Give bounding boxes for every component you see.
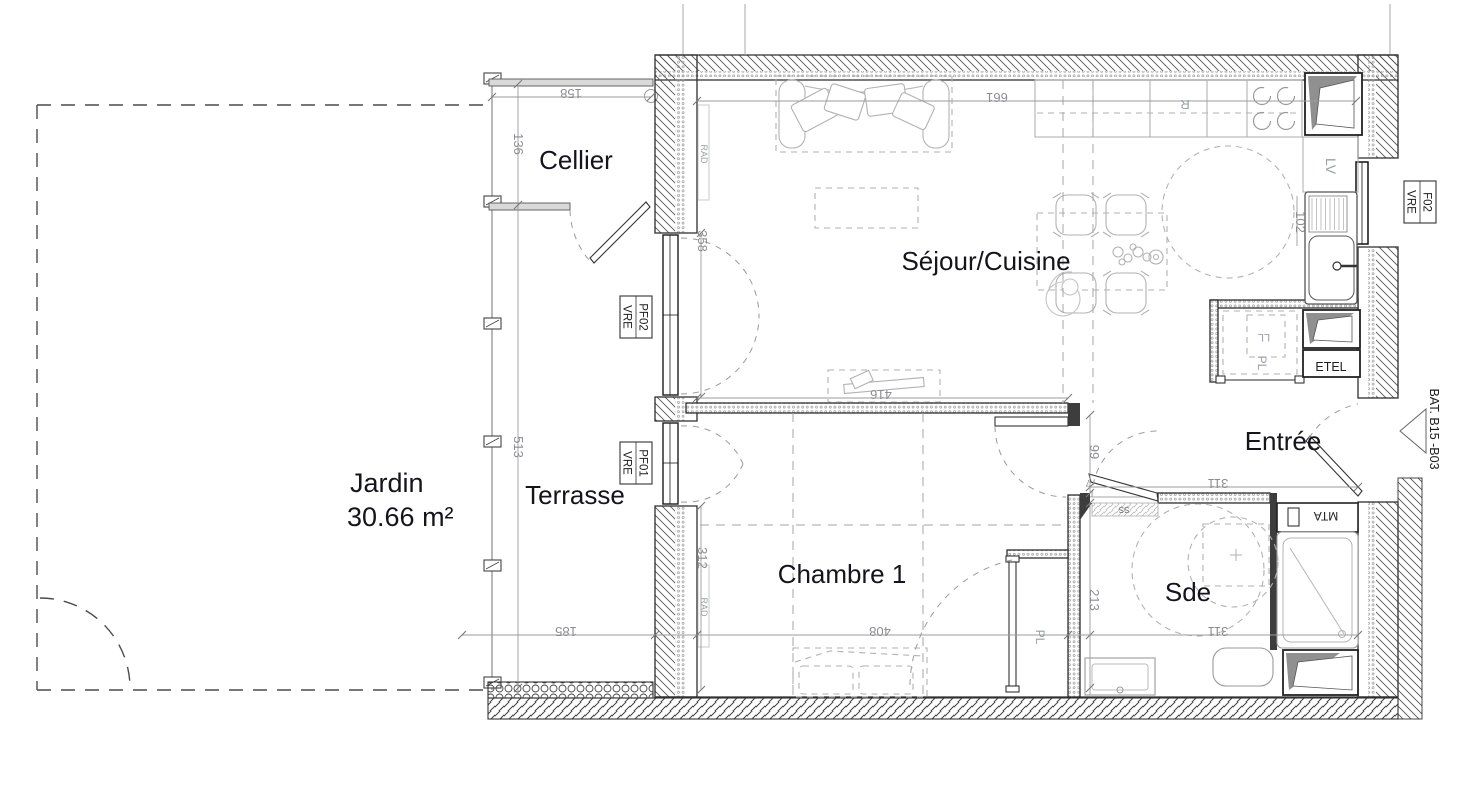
- dim-hall-height: 99: [1087, 445, 1102, 459]
- pf01-type: VRE: [621, 451, 633, 475]
- dishwasher-tag: LV: [1323, 158, 1339, 175]
- window-tag-f02: F02 VRE: [1404, 181, 1436, 223]
- dim-cellier-height: 136: [511, 133, 526, 155]
- dim-kitchen-col: 102: [1293, 211, 1308, 233]
- turning-circle: [1132, 504, 1264, 636]
- building-ref-label: BAT. B15 -B03: [1427, 388, 1441, 469]
- garden-fence: [484, 73, 501, 690]
- window-tag-pf01: PF01 VRE: [620, 442, 652, 484]
- floor-plan-drawing: 158 136 513 185 661 358 416 312 408 99 2…: [0, 0, 1470, 800]
- etel-tag: ETEL: [1315, 360, 1346, 374]
- pf01-code: PF01: [637, 449, 649, 477]
- entry-closet: [1216, 311, 1304, 383]
- window-tag-pf02: PF02 VRE: [620, 296, 652, 338]
- sejour-label: Séjour/Cuisine: [901, 246, 1070, 276]
- room-labels: Jardin 30.66 m² Terrasse Cellier Séjour/…: [347, 145, 1321, 607]
- f02-code: F02: [1421, 192, 1433, 212]
- dim-inner-wall: 416: [870, 387, 892, 402]
- jardin-area-label: 30.66 m²: [347, 502, 454, 532]
- bottom-wall: [488, 682, 1398, 719]
- radiator-tag-chambre: RAD: [699, 597, 709, 617]
- dim-cellier-width: 158: [560, 86, 582, 101]
- dim-window-pf02: 358: [695, 230, 710, 252]
- chambre-label: Chambre 1: [778, 559, 907, 589]
- garden-gate-swing: [40, 598, 130, 688]
- cooktop-burners: [1254, 88, 1295, 130]
- mta-tag: MTA: [1314, 509, 1338, 523]
- kitchen-sink: [1305, 192, 1357, 304]
- sofa: [776, 76, 952, 152]
- entree-label: Entrée: [1245, 426, 1322, 456]
- window-pf01: [663, 423, 678, 504]
- dim-entree-width: 311: [1208, 476, 1229, 491]
- dim-terrasse-width: 185: [555, 624, 577, 639]
- f02-type: VRE: [1405, 190, 1417, 214]
- dim-chambre-width: 408: [869, 624, 891, 639]
- radiator-tag-sejour: RAD: [699, 144, 709, 164]
- terrasse-label: Terrasse: [525, 480, 625, 510]
- pf02-code: PF02: [637, 303, 649, 331]
- sde-label: Sde: [1165, 577, 1211, 607]
- table-decor: [1113, 244, 1163, 265]
- pf02-type: VRE: [621, 305, 633, 329]
- round-rug: [1162, 146, 1294, 278]
- threshold-tag: SS: [1119, 505, 1130, 514]
- fridge-tag: R: [1180, 97, 1189, 112]
- jardin-label: Jardin: [350, 468, 424, 498]
- terrace-edge-insulation: [488, 682, 653, 698]
- closet-swing: [910, 560, 1012, 690]
- chambre-closet-door: [1009, 562, 1016, 688]
- dim-sde-height: 213: [1087, 589, 1102, 611]
- garden-boundary: [37, 105, 489, 690]
- closet-tag-chambre: PL: [1033, 630, 1047, 645]
- dim-terrasse-height: 513: [511, 436, 526, 458]
- washer-tag: LL: [1258, 331, 1270, 343]
- shower-tray: [1277, 532, 1358, 648]
- dim-sde-width: 311: [1208, 624, 1229, 639]
- coffee-table: [815, 188, 918, 228]
- cellier-label: Cellier: [539, 145, 613, 175]
- entrance-arrow: [1400, 409, 1426, 453]
- bed: [793, 648, 927, 697]
- floor-plan-page: 158 136 513 185 661 358 416 312 408 99 2…: [0, 0, 1470, 800]
- wc: [1213, 648, 1273, 686]
- dim-jamb: 7: [1085, 478, 1090, 488]
- dim-chambre-wall: 312: [695, 547, 710, 569]
- cellier-door-leaf: [590, 202, 650, 263]
- closet-tag-entree: PL: [1255, 356, 1269, 371]
- chambre-door-leaf: [995, 417, 1068, 426]
- dim-sejour-width: 661: [986, 90, 1008, 105]
